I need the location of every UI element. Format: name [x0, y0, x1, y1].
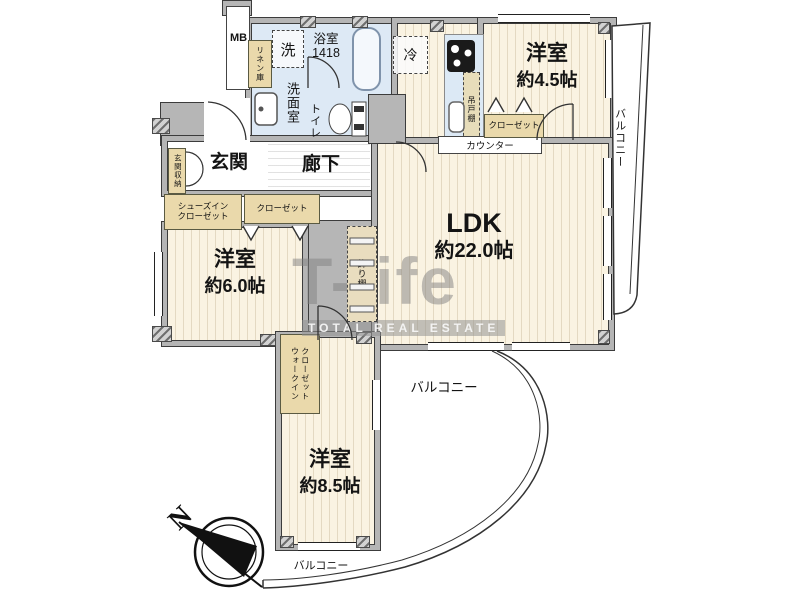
ldk-name: LDK — [414, 208, 534, 239]
bath-label: 浴室 1418 — [296, 32, 356, 61]
wic-label-col2: クローゼット — [301, 347, 310, 401]
closet-hall-label: クローゼット — [256, 204, 307, 214]
display-shelf: 飾り棚 — [347, 226, 377, 322]
balcony-right-label: バルコニー — [613, 88, 626, 188]
wall-hatch — [300, 16, 316, 28]
window-room85-right — [372, 380, 381, 430]
counter: カウンター — [438, 136, 542, 154]
washer-label: 洗 — [280, 39, 295, 60]
watermark-subtitle: TOTAL REAL ESTATE — [302, 320, 505, 336]
meter-box — [226, 6, 250, 90]
window-ldk-bottom-1 — [428, 342, 504, 351]
wall-hatch — [598, 22, 610, 34]
entrance-storage-label: 玄関収納 — [173, 154, 182, 188]
wall-hatch — [430, 20, 444, 32]
shoes-in-closet: シューズインクローゼット — [164, 194, 242, 230]
window-room60-left — [154, 252, 163, 316]
bath-size: 1418 — [312, 46, 340, 60]
toilet-label: トイレ — [308, 97, 321, 145]
closet-room45-label: クローゼット — [488, 121, 539, 131]
wall-hatch — [356, 536, 370, 548]
wic-label-col1: ウォークイン — [290, 347, 299, 401]
room85-size: 約8.5帖 — [270, 476, 390, 497]
counter-label: カウンター — [466, 138, 514, 152]
wall-slab-toilet — [368, 94, 406, 144]
entry-alcove — [204, 98, 250, 144]
bathtub-icon — [352, 27, 381, 91]
walk-in-closet: ウォークイン クローゼット — [280, 334, 320, 414]
balcony-mid-label: バルコニー — [404, 380, 484, 396]
balcony-bottom-label: バルコニー — [285, 560, 357, 573]
room85-name: 洋室 — [275, 448, 385, 472]
wall-hatch — [152, 118, 170, 134]
wall-hatch — [280, 536, 294, 548]
meter-box-label: MB — [230, 32, 246, 45]
wall-hatch — [352, 16, 368, 28]
room45-name: 洋室 — [492, 42, 602, 66]
balcony-right-rail — [630, 25, 643, 294]
entrance-storage: 玄関収納 — [168, 148, 186, 194]
compass-icon: N — [162, 500, 263, 587]
window-room45-top — [498, 14, 590, 23]
wall-hatch — [152, 326, 172, 342]
fridge-label: 冷 — [404, 45, 418, 65]
hallway-label: 廊下 — [286, 154, 356, 176]
room60-size: 約6.0帖 — [170, 276, 300, 297]
display-shelf-label: 飾り棚 — [356, 259, 369, 289]
window-room85-bottom — [298, 542, 360, 551]
wall-hatch — [598, 330, 610, 344]
closet-hall: クローゼット — [244, 194, 320, 224]
hanging-cabinet-label: 吊戸棚 — [466, 96, 477, 123]
linen-label: リネン庫 — [255, 46, 264, 82]
hanging-cabinet: 吊戸棚 — [463, 72, 480, 146]
compass-north-label: N — [162, 500, 198, 536]
window-ldk-right-3 — [603, 274, 612, 320]
bath-name: 浴室 — [313, 32, 338, 46]
fridge-space: 冷 — [393, 36, 428, 74]
entrance-label: 玄関 — [198, 152, 260, 174]
linen-closet: リネン庫 — [248, 40, 272, 88]
wall-hatch — [260, 334, 276, 346]
room60-name: 洋室 — [175, 248, 295, 272]
window-ldk-right-1 — [603, 158, 612, 208]
ldk-size: 約22.0帖 — [408, 240, 540, 263]
closet-room45: クローゼット — [484, 114, 544, 138]
shoes-in-closet-label: シューズインクローゼット — [177, 202, 228, 222]
floor-plan: MB 浴室 1418 洗 リネン庫 洗面室 トイレ 冷 吊戸棚 カウンター 洋室… — [0, 0, 800, 600]
washroom-label: 洗面室 — [284, 66, 299, 140]
compass-needle — [179, 522, 257, 577]
window-ldk-right-2 — [603, 216, 612, 266]
window-ldk-bottom-2 — [512, 342, 570, 351]
room45-size: 約4.5帖 — [487, 70, 607, 91]
